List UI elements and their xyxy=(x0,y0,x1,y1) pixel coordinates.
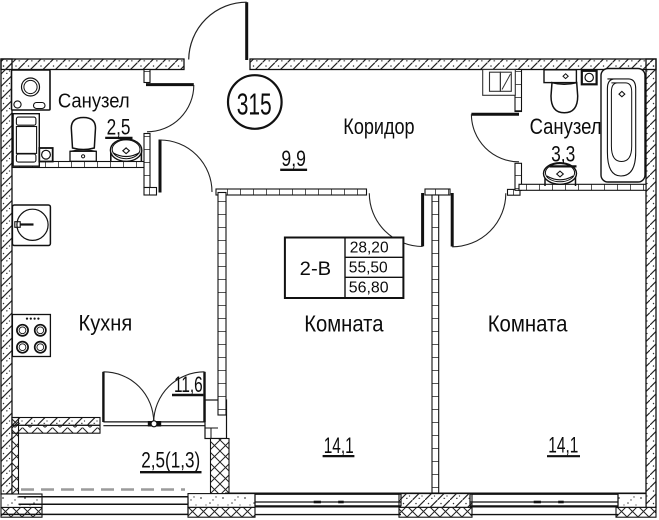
svg-text:28,20: 28,20 xyxy=(350,240,389,257)
svg-text:Комната: Комната xyxy=(304,311,383,337)
svg-text:2-В: 2-В xyxy=(300,259,332,280)
svg-text:56,80: 56,80 xyxy=(349,280,389,297)
svg-text:315: 315 xyxy=(237,86,272,121)
svg-text:Коридор: Коридор xyxy=(343,114,414,139)
svg-text:55,50: 55,50 xyxy=(349,260,388,277)
svg-text:Санузел: Санузел xyxy=(530,114,602,139)
svg-text:Комната: Комната xyxy=(488,311,568,337)
svg-text:14,1: 14,1 xyxy=(324,433,354,458)
svg-text:Кухня: Кухня xyxy=(79,311,133,336)
svg-text:11,6: 11,6 xyxy=(174,372,203,397)
svg-text:9,9: 9,9 xyxy=(281,146,306,171)
svg-text:3,3: 3,3 xyxy=(551,142,575,167)
svg-text:2,5(1,3): 2,5(1,3) xyxy=(141,447,200,472)
svg-text:Санузел: Санузел xyxy=(58,91,130,113)
svg-text:14,1: 14,1 xyxy=(548,433,578,458)
svg-text:2,5: 2,5 xyxy=(107,115,131,140)
